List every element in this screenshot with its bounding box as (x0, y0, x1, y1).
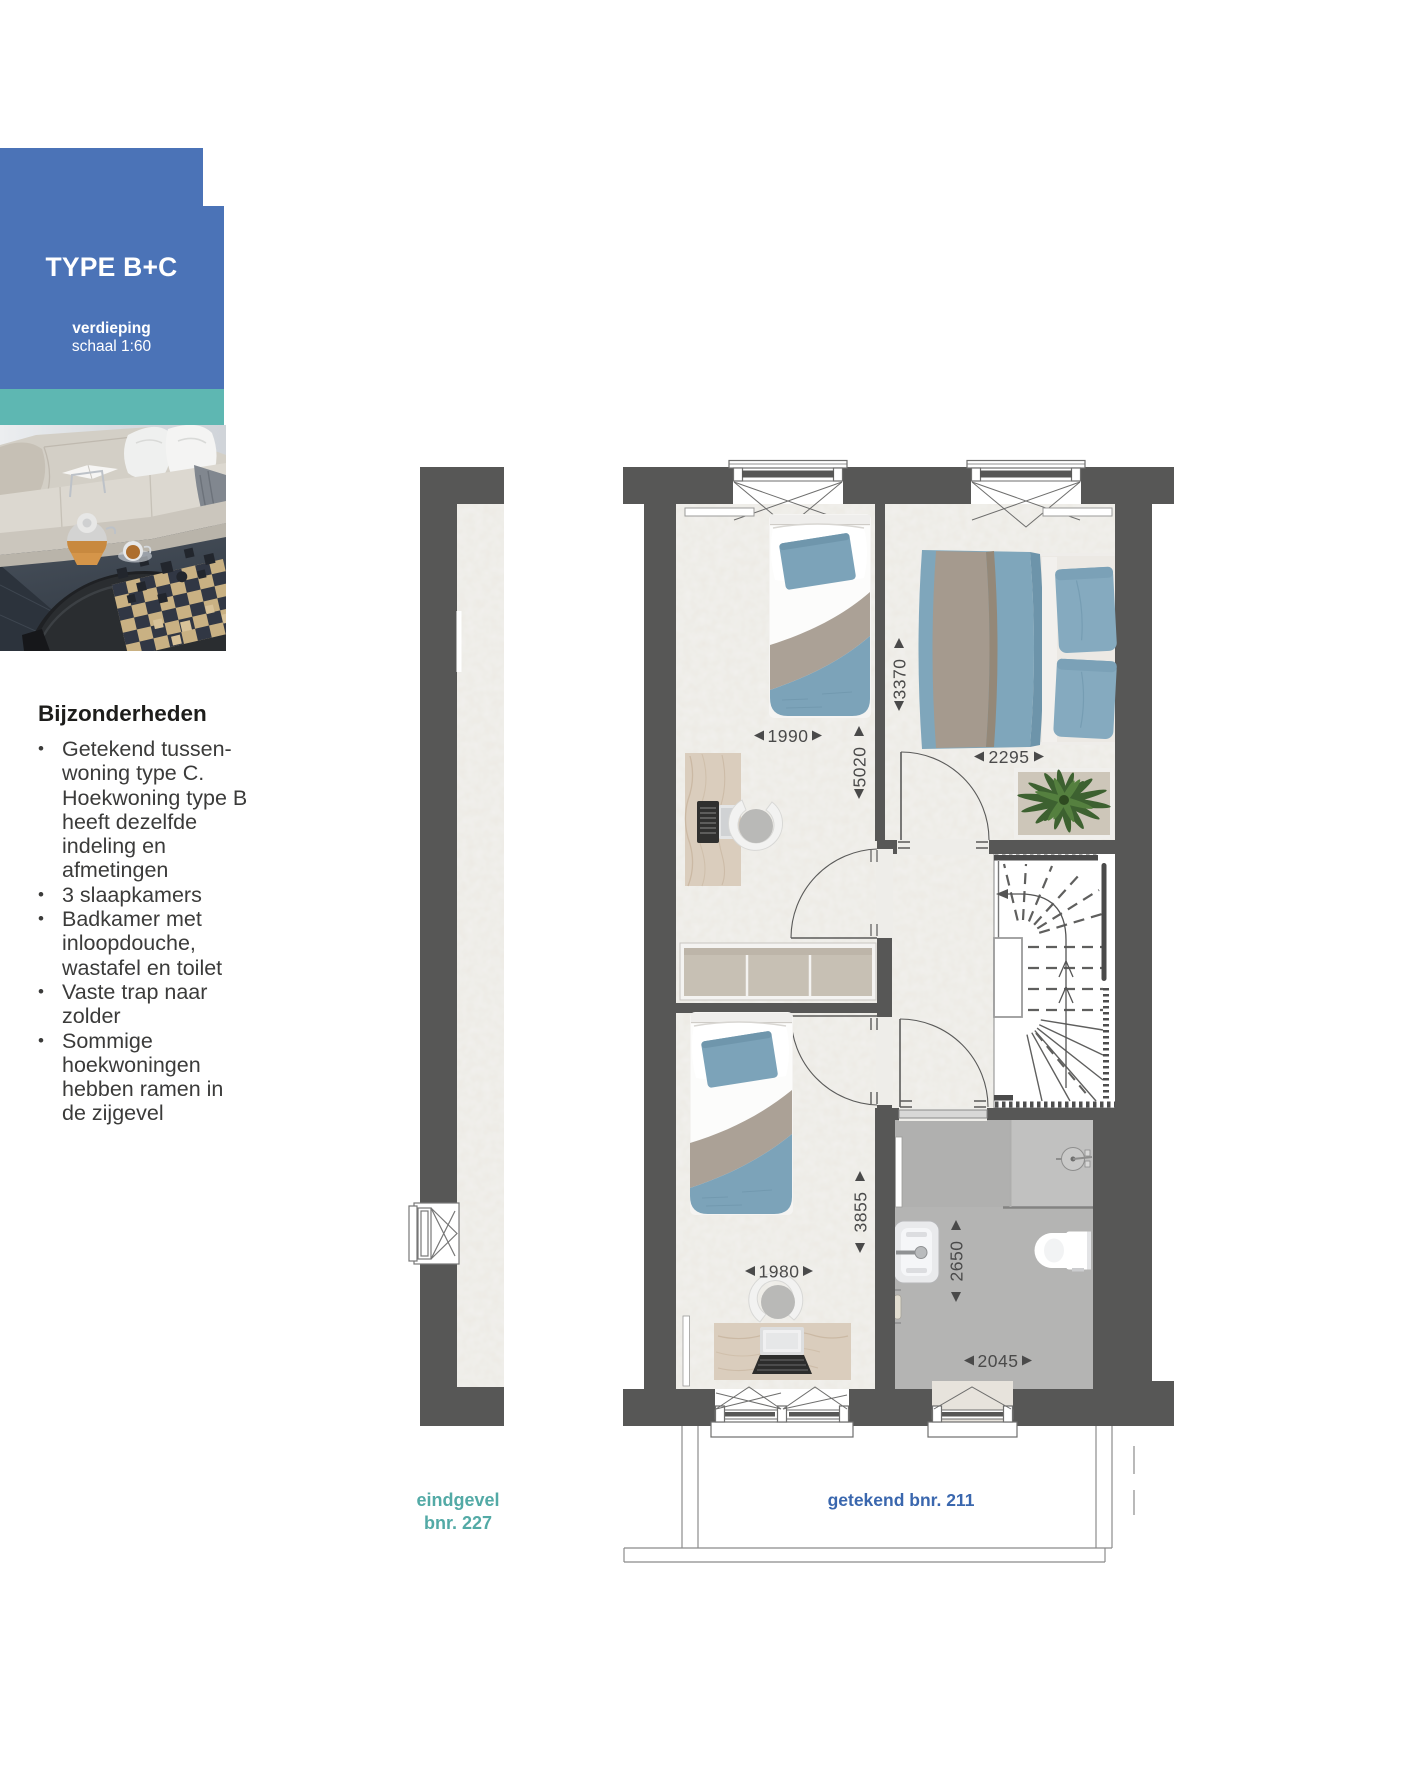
svg-text:3370: 3370 (890, 659, 910, 700)
svg-text:1980: 1980 (759, 1262, 800, 1282)
svg-text:5020: 5020 (850, 747, 870, 788)
svg-text:2045: 2045 (978, 1351, 1019, 1371)
svg-text:1990: 1990 (768, 726, 809, 746)
svg-text:3855: 3855 (851, 1192, 871, 1233)
svg-text:2295: 2295 (989, 747, 1030, 767)
svg-text:2650: 2650 (947, 1241, 967, 1282)
